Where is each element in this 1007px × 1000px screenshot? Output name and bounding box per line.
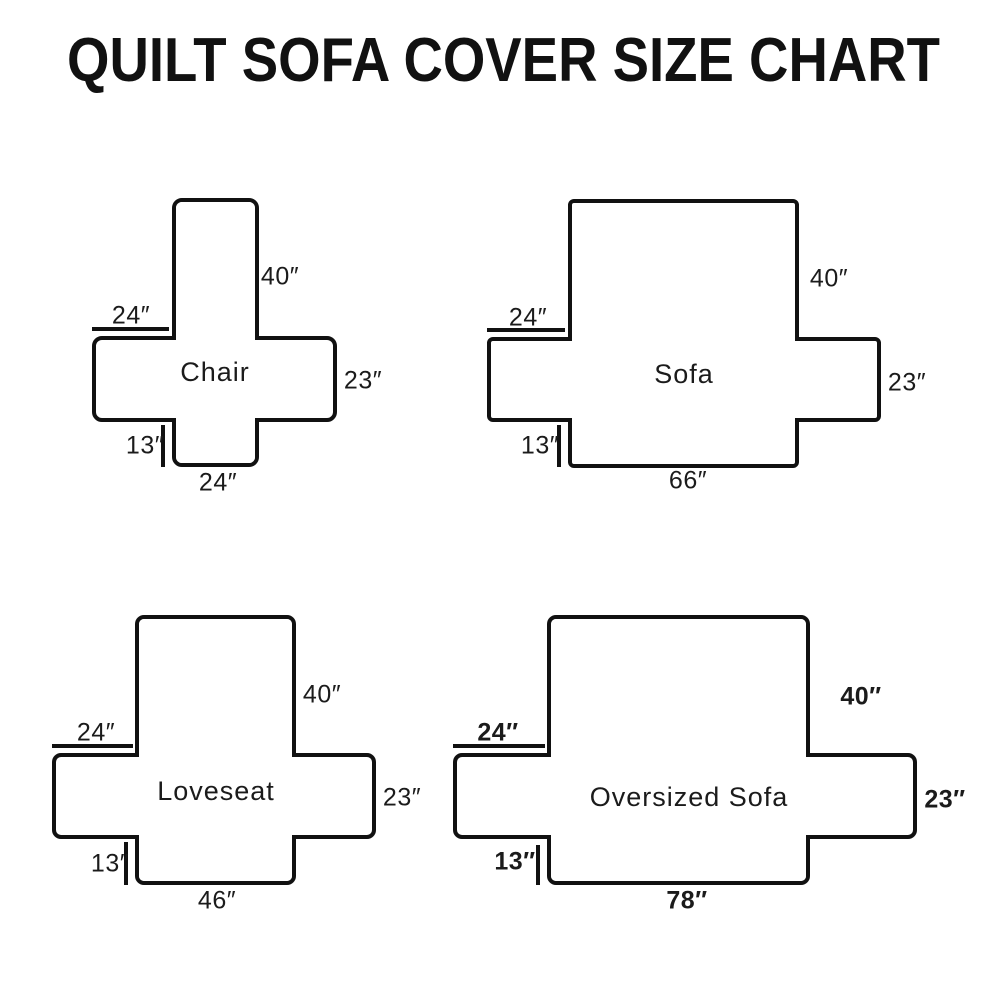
oversized-sofa-front-drop-label: 13″ [494,848,535,876]
sofa-front-drop-label: 13″ [521,432,559,460]
page-title: QUILT SOFA COVER SIZE CHART [60,30,946,92]
size-chart-canvas: QUILT SOFA COVER SIZE CHART 40″ 24″ Chai… [0,0,1007,1000]
loveseat-seat-width-label: 46″ [198,887,236,915]
loveseat-front-drop-label: 13″ [91,850,129,878]
sofa-shape-fill [572,203,795,464]
loveseat-label: Loveseat [157,777,275,807]
oversized-sofa-back-height-label: 40″ [840,683,881,711]
loveseat-arm-depth-label: 23″ [383,784,421,812]
chair-front-drop-label: 13″ [126,432,164,460]
oversized-sofa-label: Oversized Sofa [590,783,789,813]
oversized-sofa-front-drop-line [536,845,540,885]
loveseat-back-height-label: 40″ [303,681,341,709]
oversized-sofa-shape-fill [551,619,806,881]
sofa-back-height-label: 40″ [810,265,848,293]
chair-arm-depth-label: 23″ [344,367,382,395]
sofa-arm-width-label: 24″ [509,304,547,332]
loveseat-shape-fill [139,619,292,881]
chair-label: Chair [180,358,250,388]
sofa-label: Sofa [654,360,714,390]
chair-arm-width-label: 24″ [112,302,150,330]
oversized-sofa-arm-width-label: 24″ [477,719,518,747]
chair-seat-width-label: 24″ [199,469,237,497]
sofa-arm-depth-label: 23″ [888,369,926,397]
loveseat-arm-width-label: 24″ [77,719,115,747]
chair-back-height-label: 40″ [261,263,299,291]
oversized-sofa-arm-depth-label: 23″ [924,786,965,814]
oversized-sofa-seat-width-label: 78″ [666,887,707,915]
chair-shape-fill [176,202,255,463]
sofa-seat-width-label: 66″ [669,467,707,495]
